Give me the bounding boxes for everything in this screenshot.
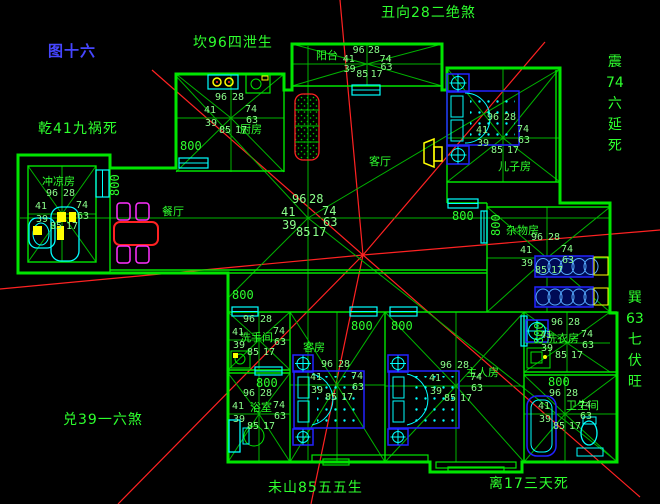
star-number-lower_left: 39 (311, 386, 323, 396)
star-number-lower_left: 39 (344, 65, 356, 75)
room-label-bathroom-2: 浴室 (250, 402, 272, 413)
star-number-lower_left: 39 (36, 215, 48, 225)
stove-icon (208, 75, 238, 89)
star-number-bottom_left: 85 (555, 351, 567, 361)
star-number-lower_right: 63 (246, 116, 258, 126)
star-number-top_left: 96 (551, 318, 563, 328)
star-number-bottom_left: 85 (247, 348, 259, 358)
kitchen-sink-icon (246, 74, 270, 93)
compass-label-char: 六 (608, 97, 622, 111)
floor-plan-canvas[interactable]: 图十六 坎96四泄生 丑向28二绝煞 乾41九祸死 兑39一六煞 未山85五五生… (0, 0, 660, 504)
dimension-label: 800 (232, 289, 254, 301)
star-number-bottom_right: 17 (66, 222, 78, 232)
star-number-bottom_left: 85 (356, 70, 368, 80)
star-number-bottom_left: 85 (535, 266, 547, 276)
compass-label-char: 63 (626, 312, 644, 326)
star-number-top_right: 28 (338, 360, 350, 370)
dimension-label: 800 (548, 376, 570, 388)
star-number-right: 74 (470, 373, 482, 383)
nightstand-compass-icon (447, 146, 469, 164)
star-number-lower_right: 63 (582, 341, 594, 351)
star-number-left: 41 (204, 106, 216, 116)
star-number-top_left: 96 (292, 193, 306, 205)
star-number-right: 74 (245, 105, 257, 115)
window-icon (179, 158, 208, 168)
star-number-lower_left: 39 (541, 344, 553, 354)
star-number-top_right: 28 (548, 233, 560, 243)
dimension-label: 800 (533, 322, 545, 344)
nightstand-compass-icon (447, 74, 469, 92)
dimension-label: 800 (180, 140, 202, 152)
star-number-right: 74 (273, 327, 285, 337)
star-number-bottom_right: 17 (551, 266, 563, 276)
nightstand-compass-icon (293, 429, 313, 445)
star-number-left: 41 (476, 126, 488, 136)
star-number-lower_left: 39 (205, 119, 217, 129)
compass-label-wei-sitting: 未山85五五生 (268, 481, 363, 495)
window-icon (448, 199, 478, 208)
star-number-bottom_left: 85 (325, 393, 337, 403)
star-number-left: 41 (232, 328, 244, 338)
window-icon (390, 307, 417, 316)
entry-door-icon (424, 139, 442, 167)
compass-label-kan: 坎96四泄生 (193, 36, 273, 50)
star-number-top_left: 96 (487, 113, 499, 123)
star-number-bottom_left: 85 (50, 222, 62, 232)
compass-label-qian: 乾41九祸死 (38, 122, 118, 136)
star-number-top_right: 28 (568, 318, 580, 328)
star-number-bottom_right: 17 (341, 393, 353, 403)
star-number-lower_right: 63 (562, 256, 574, 266)
star-number-lower_left: 39 (233, 341, 245, 351)
dimension-label: 800 (351, 320, 373, 332)
nightstand-compass-icon (388, 429, 408, 445)
star-number-lower_right: 63 (471, 384, 483, 394)
star-number-lower_left: 39 (430, 387, 442, 397)
star-number-right: 74 (561, 245, 573, 255)
star-number-top_left: 96 (440, 361, 452, 371)
star-number-bottom_right: 17 (571, 351, 583, 361)
compass-label-char: 死 (608, 139, 622, 153)
compass-label-char: 七 (628, 333, 642, 347)
star-number-bottom_left: 85 (247, 422, 259, 432)
star-number-bottom_right: 17 (371, 70, 383, 80)
star-number-right: 74 (517, 125, 529, 135)
dimension-label: 800 (391, 320, 413, 332)
star-number-bottom_right: 17 (312, 226, 326, 238)
window-icon (481, 211, 487, 243)
compass-label-dui: 兑39一六煞 (63, 413, 143, 427)
plant-icon (295, 94, 319, 160)
star-number-left: 41 (538, 402, 550, 412)
star-number-lower_right: 63 (580, 412, 592, 422)
dimension-label: 800 (256, 377, 278, 389)
compass-label-zhen: 震74六延死 (606, 55, 624, 153)
star-number-top_right: 28 (566, 389, 578, 399)
star-number-top_right: 28 (260, 315, 272, 325)
star-number-top_right: 28 (232, 93, 244, 103)
dimension-label: 800 (109, 174, 121, 196)
star-number-left: 41 (310, 373, 322, 383)
star-number-right: 74 (579, 401, 591, 411)
nightstand-compass-icon (388, 355, 408, 372)
compass-label-li: 离17三天死 (489, 477, 569, 491)
star-number-top_right: 28 (368, 46, 380, 56)
star-number-top_left: 96 (549, 389, 561, 399)
star-number-bottom_right: 17 (263, 422, 275, 432)
star-number-bottom_right: 17 (235, 126, 247, 136)
room-label-dining: 餐厅 (162, 206, 184, 217)
star-number-left: 41 (429, 374, 441, 384)
star-number-top_left: 96 (321, 360, 333, 370)
star-number-right: 74 (581, 330, 593, 340)
star-number-lower_right: 63 (274, 412, 286, 422)
star-number-lower_right: 63 (77, 212, 89, 222)
star-number-bottom_right: 17 (507, 146, 519, 156)
star-number-right: 74 (351, 372, 363, 382)
star-number-top_right: 28 (260, 389, 272, 399)
room-label-balcony: 阳台 (316, 50, 338, 61)
compass-label-char: 74 (606, 76, 624, 90)
star-number-bottom_right: 17 (263, 348, 275, 358)
star-number-top_right: 28 (63, 189, 75, 199)
star-number-bottom_left: 85 (444, 394, 456, 404)
compass-label-char: 伏 (628, 354, 642, 368)
compass-label-chou-facing: 丑向28二绝煞 (381, 6, 476, 20)
compass-label-char: 延 (608, 118, 622, 132)
star-number-lower_left: 39 (477, 139, 489, 149)
star-number-bottom_right: 17 (460, 394, 472, 404)
room-label-bath-left: 冲凉房 (42, 176, 75, 187)
nightstand-compass-icon (293, 355, 313, 372)
dining-set (114, 203, 158, 263)
compass-label-char: 巽 (628, 291, 642, 305)
star-number-lower_right: 63 (274, 338, 286, 348)
star-number-bottom_left: 85 (296, 226, 310, 238)
star-number-left: 41 (35, 202, 47, 212)
star-number-lower_left: 39 (521, 259, 533, 269)
star-number-top_left: 96 (46, 189, 58, 199)
compass-label-char: 旺 (628, 375, 642, 389)
star-number-right: 74 (273, 401, 285, 411)
star-number-lower_right: 63 (352, 383, 364, 393)
dimension-label: 800 (490, 214, 502, 236)
star-number-bottom_left: 85 (491, 146, 503, 156)
star-number-lower_left: 39 (282, 219, 296, 231)
star-number-top_left: 96 (531, 233, 543, 243)
compass-label-xun: 巽63七伏旺 (626, 291, 644, 389)
star-number-top_right: 28 (457, 361, 469, 371)
figure-label: 图十六 (48, 44, 96, 59)
star-number-lower_left: 39 (233, 415, 245, 425)
star-number-right: 74 (76, 201, 88, 211)
star-number-lower_right: 63 (518, 136, 530, 146)
room-label-guest-room: 客房 (303, 342, 325, 353)
star-number-left: 41 (281, 206, 295, 218)
room-label-son-room: 儿子房 (498, 161, 531, 172)
star-number-top_left: 96 (243, 315, 255, 325)
window-icon (350, 307, 377, 316)
star-number-left: 41 (232, 402, 244, 412)
star-number-left: 41 (520, 246, 532, 256)
star-number-lower_left: 39 (539, 415, 551, 425)
star-number-bottom_left: 85 (219, 126, 231, 136)
star-number-bottom_left: 85 (553, 422, 565, 432)
star-number-top_left: 96 (243, 389, 255, 399)
star-number-bottom_right: 17 (569, 422, 581, 432)
room-label-living: 客厅 (369, 156, 391, 167)
star-number-top_left: 96 (215, 93, 227, 103)
star-number-top_right: 28 (504, 113, 516, 123)
compass-label-char: 震 (608, 55, 622, 69)
dimension-label: 800 (452, 210, 474, 222)
